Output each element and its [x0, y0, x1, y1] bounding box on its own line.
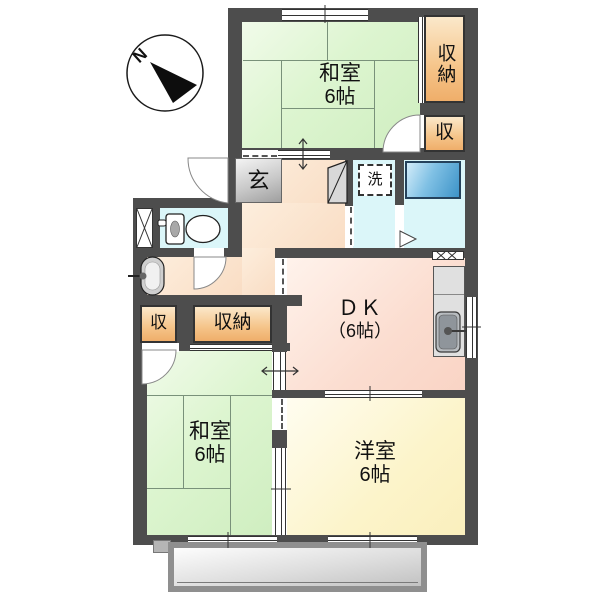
compass-n-label: N [129, 44, 151, 67]
wall-shaft-divider [153, 208, 160, 248]
floor-plan: N 和室 6帖 収納 収 玄 洗 ＤＫ （6帖） 収 収納 和室 6帖 洋室 6… [0, 0, 600, 600]
youshitsu-name: 洋室 [354, 440, 396, 464]
window-kitchen-right [466, 297, 477, 358]
dk-size: （6帖） [328, 321, 392, 342]
hallway-mid [242, 203, 345, 248]
laundry-label: 洗 [358, 171, 392, 188]
window-dk-youshitsu [325, 390, 422, 398]
hallway-left [147, 257, 242, 295]
wall-room-divider-block [272, 430, 287, 448]
genkan-label: 玄 [235, 168, 282, 193]
wall-toilet-bottom [133, 248, 242, 257]
wall-storage-divider [177, 300, 193, 343]
storage-bottom-label: 収 [140, 313, 177, 333]
toilet-room [160, 208, 228, 248]
sliding-door-washitsu-top [278, 150, 330, 159]
door-opening-toilet [194, 248, 224, 257]
window-top [282, 9, 368, 21]
wall-right [465, 8, 478, 545]
wall-dk-left [272, 295, 287, 352]
door-opening-washitsu-bottom [142, 343, 179, 352]
door-arc-entrance [188, 158, 228, 203]
tatami-line [147, 488, 230, 489]
balcony-inner-line [177, 582, 418, 583]
wall-washroom-left [345, 160, 353, 206]
opening-hall-dk [276, 258, 287, 295]
wall-bath-divider [395, 160, 404, 205]
tatami-line [327, 22, 328, 60]
window-kitchen-small [432, 251, 464, 260]
washitsu-bottom-name: 和室 [189, 420, 231, 444]
door-bathroom [396, 205, 404, 248]
door-washroom [345, 206, 354, 246]
closet-top-label: 収納 [424, 25, 465, 103]
wall-closet-top-bottom [420, 103, 465, 115]
pipe-shaft-box [136, 208, 153, 248]
sliding-door-washitsu-youshitsu [275, 448, 286, 535]
youshitsu-size: 6帖 [359, 464, 390, 487]
sliding-door-washitsu-dk [273, 352, 286, 390]
bathtub [405, 161, 461, 199]
wall-toilet-top [133, 198, 242, 208]
balcony [168, 542, 427, 592]
dk-name: ＤＫ [338, 297, 382, 321]
opening-washitsu-youshitsu-upper [275, 398, 286, 430]
tatami-line [243, 60, 420, 61]
kitchen-counter-divider [434, 294, 464, 295]
washitsu-top-name: 和室 [319, 62, 361, 86]
washitsu-top-size: 6帖 [324, 86, 355, 109]
storage-top-label: 収 [424, 122, 465, 144]
compass-arrow-icon [150, 62, 197, 103]
washitsu-bottom-size: 6帖 [194, 444, 225, 467]
tatami-line [147, 395, 272, 396]
wall-left-upper [228, 8, 242, 160]
hallway-lower [242, 248, 275, 295]
kitchen-counter [433, 266, 465, 357]
sliding-door-closet-bottom [190, 344, 272, 351]
closet-bottom-label: 収納 [193, 312, 272, 334]
